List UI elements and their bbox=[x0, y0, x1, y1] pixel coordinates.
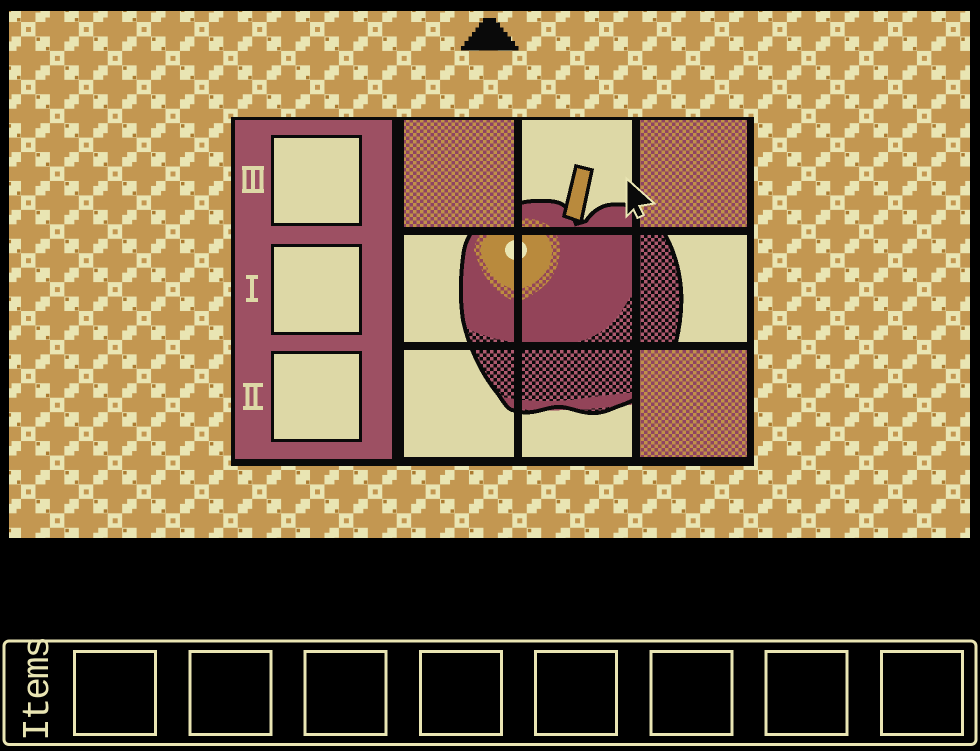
svg-text:Items: Items bbox=[17, 638, 60, 741]
